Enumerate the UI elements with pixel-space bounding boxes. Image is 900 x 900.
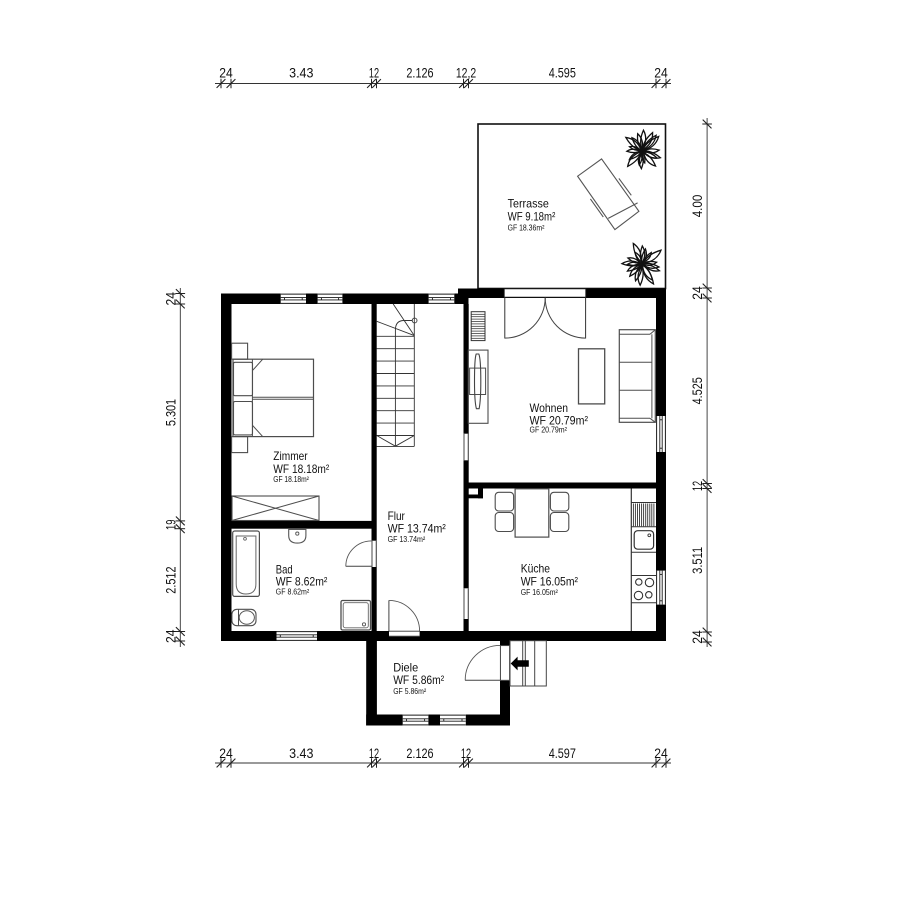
svg-text:24: 24 — [654, 64, 668, 80]
svg-text:3.511: 3.511 — [689, 547, 705, 574]
svg-text:Zimmer: Zimmer — [273, 449, 307, 463]
svg-text:24: 24 — [219, 745, 233, 761]
svg-text:5.301: 5.301 — [163, 399, 179, 426]
svg-text:24: 24 — [163, 292, 179, 306]
svg-text:2.126: 2.126 — [406, 64, 433, 80]
svg-text:GF 18.18m²: GF 18.18m² — [273, 475, 309, 484]
svg-text:3.43: 3.43 — [289, 64, 313, 80]
svg-text:19: 19 — [163, 519, 179, 530]
svg-text:2.126: 2.126 — [406, 745, 433, 761]
svg-text:12: 12 — [461, 745, 471, 761]
svg-text:GF 8.62m²: GF 8.62m² — [276, 588, 310, 597]
svg-text:WF 5.86m²: WF 5.86m² — [393, 673, 444, 687]
svg-text:WF 13.74m²: WF 13.74m² — [388, 522, 446, 536]
svg-text:4.525: 4.525 — [689, 377, 705, 404]
svg-text:12,2: 12,2 — [456, 64, 476, 80]
svg-text:24: 24 — [219, 64, 233, 80]
svg-text:GF 20.79m²: GF 20.79m² — [530, 426, 568, 435]
svg-text:GF 18.36m²: GF 18.36m² — [508, 223, 545, 232]
svg-text:2.512: 2.512 — [163, 566, 179, 593]
svg-text:GF 5.86m²: GF 5.86m² — [393, 687, 426, 696]
svg-text:WF 18.18m²: WF 18.18m² — [273, 462, 329, 476]
svg-text:WF 16.05m²: WF 16.05m² — [521, 575, 578, 589]
svg-text:4.00: 4.00 — [689, 195, 705, 218]
svg-text:GF 16.05m²: GF 16.05m² — [521, 588, 559, 597]
svg-text:24: 24 — [689, 630, 705, 644]
svg-text:24: 24 — [689, 286, 705, 300]
svg-text:24: 24 — [163, 629, 179, 643]
svg-text:Küche: Küche — [521, 562, 551, 576]
svg-text:3.43: 3.43 — [289, 745, 313, 761]
svg-text:4.597: 4.597 — [549, 745, 576, 761]
svg-text:24: 24 — [654, 745, 668, 761]
svg-text:12: 12 — [689, 481, 705, 491]
svg-text:WF 8.62m²: WF 8.62m² — [276, 574, 328, 588]
svg-text:GF 13.74m²: GF 13.74m² — [388, 535, 426, 544]
svg-text:4.595: 4.595 — [549, 64, 576, 80]
svg-text:12: 12 — [369, 745, 379, 761]
svg-text:WF 9.18m²: WF 9.18m² — [508, 209, 556, 223]
svg-text:12: 12 — [369, 64, 379, 80]
